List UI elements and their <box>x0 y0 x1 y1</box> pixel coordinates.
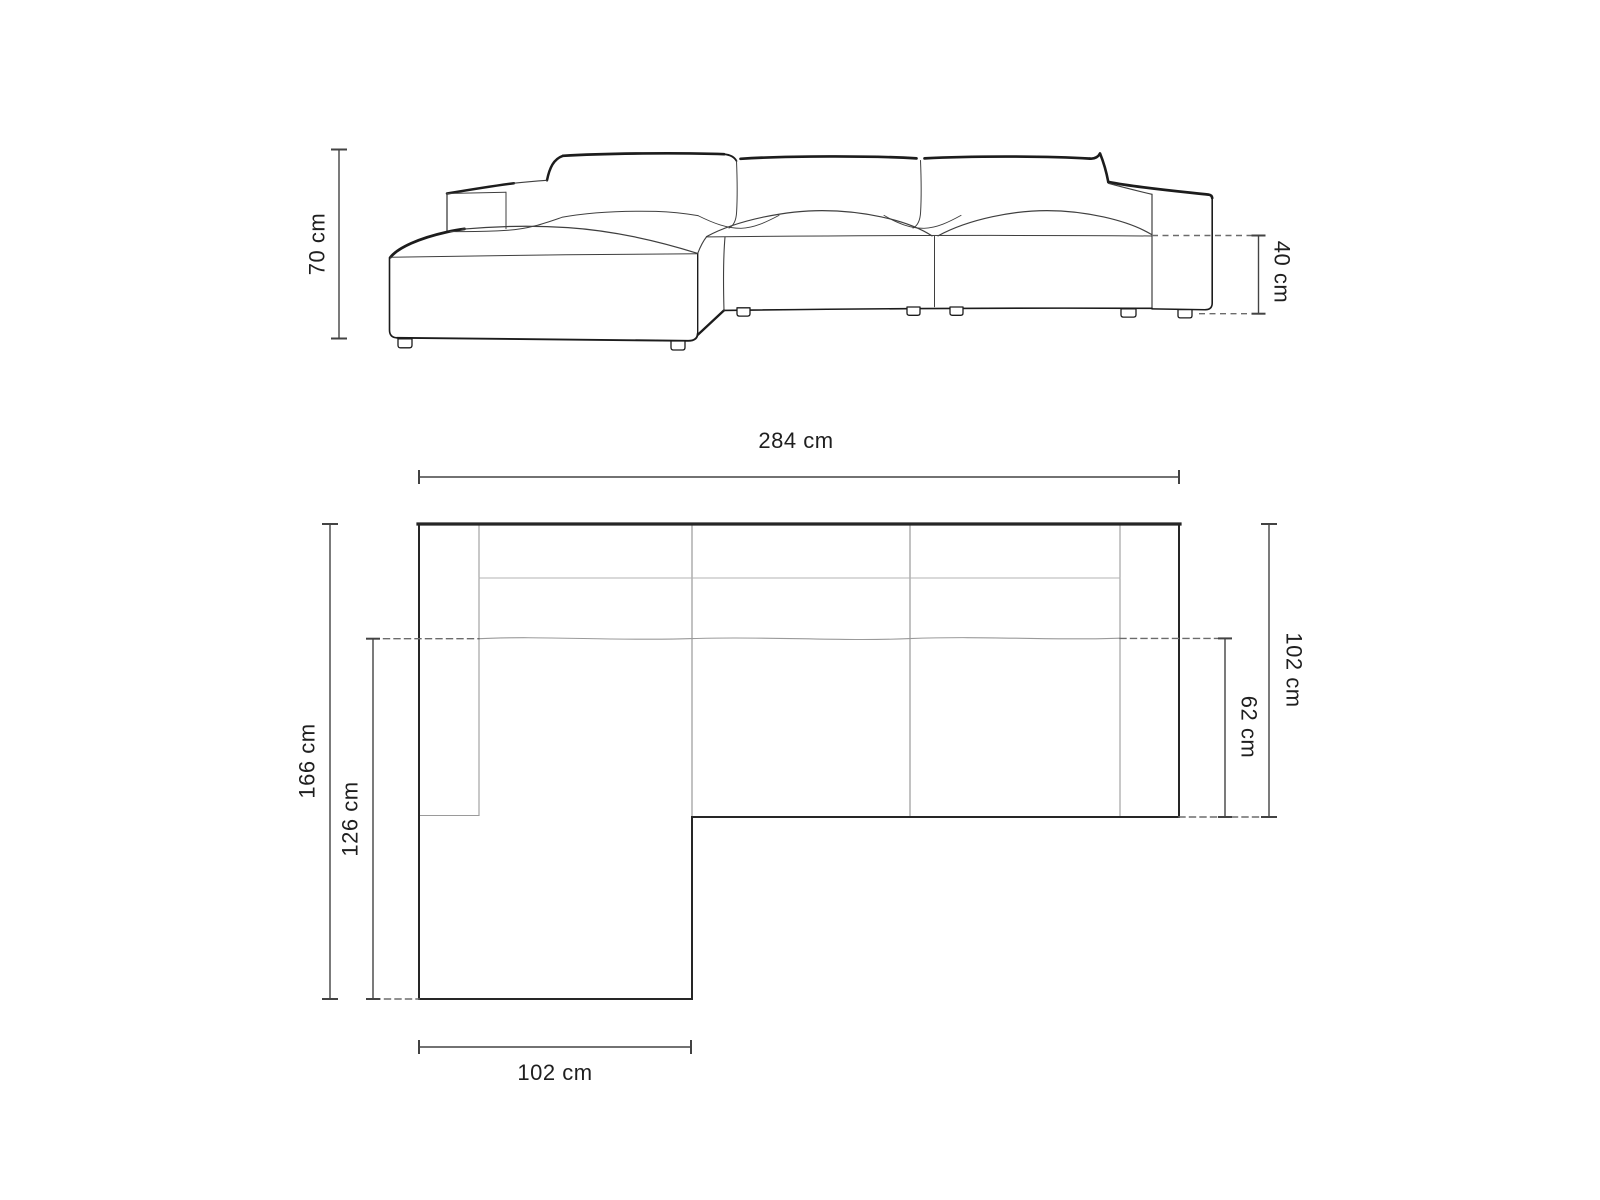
plan-chaise-width-dimension: 102 cm <box>419 1040 691 1085</box>
front-height-dimension: 70 cm <box>305 150 348 339</box>
back-cushions <box>547 153 1108 228</box>
plan-chaise-depth-label: 126 cm <box>338 781 363 856</box>
plan-width-dimension: 284 cm <box>419 428 1179 484</box>
front-seat-height-label: 40 cm <box>1270 241 1295 303</box>
chaise-armrest <box>447 180 547 232</box>
sofa-legs <box>398 307 1192 350</box>
plan-view-sofa-drawing <box>373 524 1273 999</box>
plan-width-label: 284 cm <box>758 428 833 453</box>
dimension-diagram: 70 cm 40 cm <box>0 0 1600 1200</box>
plan-outline <box>418 524 1180 999</box>
front-view-sofa-drawing <box>390 153 1213 350</box>
diagram-svg: 70 cm 40 cm <box>0 0 1600 1200</box>
plan-dashed-lines <box>373 638 1273 999</box>
plan-chaise-depth-dimension: 126 cm <box>338 639 381 999</box>
plan-depth-dimension: 166 cm <box>295 524 339 999</box>
chaise-body <box>390 211 699 341</box>
front-height-label: 70 cm <box>305 213 330 275</box>
plan-seat-front-wavy-line <box>479 638 1120 640</box>
plan-seat-depth-label: 62 cm <box>1237 696 1262 758</box>
plan-depth-label: 166 cm <box>295 723 320 798</box>
front-panel <box>698 235 1152 334</box>
seat-cushions <box>707 211 1153 237</box>
right-armrest <box>1108 182 1212 310</box>
front-seat-height-dimension: 40 cm <box>1152 236 1295 314</box>
plan-right-depth-dimension: 102 cm <box>1261 524 1307 817</box>
plan-seat-depth-dimension: 62 cm <box>1218 638 1262 817</box>
plan-chaise-width-label: 102 cm <box>517 1060 592 1085</box>
plan-right-depth-label: 102 cm <box>1282 632 1307 707</box>
plan-inner-lines <box>419 524 1120 817</box>
